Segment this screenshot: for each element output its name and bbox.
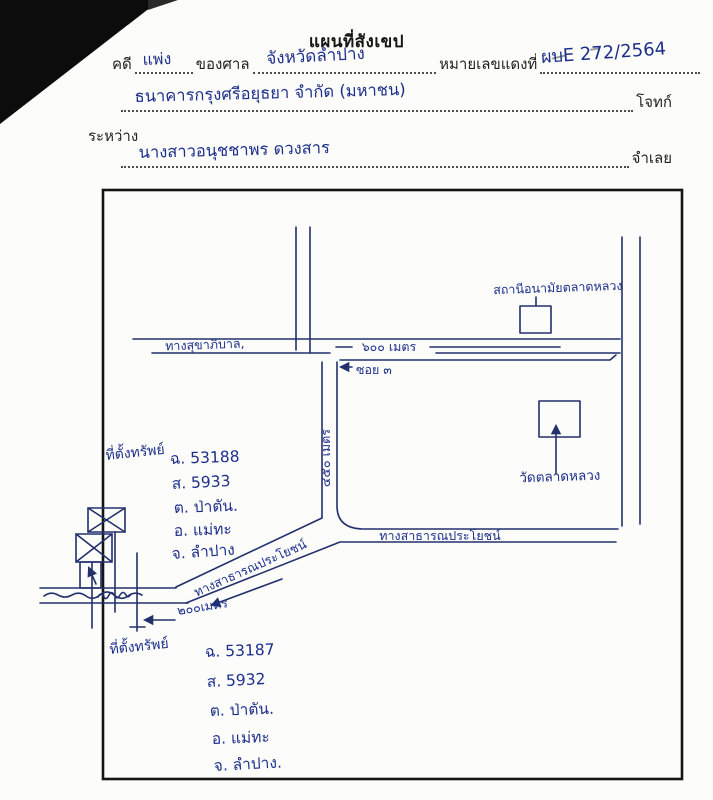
temple-box: [539, 401, 580, 437]
property1-title: ที่ตั้งทรัพย์: [104, 439, 165, 464]
property1-deed: ฉ. 53188: [170, 448, 240, 468]
health-station-box: [520, 306, 551, 333]
property2-deed: ฉ. 53187: [205, 641, 275, 661]
health-station-label: สถานีอนามัยตลาดหลวง: [493, 278, 623, 298]
property2-title: ที่ตั้งทรัพย์: [108, 633, 169, 658]
property1-survey: ส. 5933: [171, 472, 231, 493]
distance-200m-label: ๒๐๐เมตร: [176, 595, 229, 618]
property-block-2: ที่ตั้งทรัพย์ ฉ. 53187 ส. 5932 ต. ป่าตัน…: [108, 633, 282, 775]
property2-amphoe: อ. แม่ทะ: [212, 728, 271, 748]
temple-label: วัดตลาดหลวง: [519, 468, 601, 487]
property2-province: จ. ลำปาง.: [213, 753, 282, 775]
property1-amphoe: อ. แม่ทะ: [174, 520, 233, 540]
sketch-map: ทางสุขาภิบาล, ๖๐๐ เมตร ซอย ๓ ๔๕๐ เมตร สถ…: [0, 0, 713, 800]
public-road-right-label: ทางสาธารณประโยชน์: [379, 528, 501, 543]
property-block-1: ที่ตั้งทรัพย์ ฉ. 53188 ส. 5933 ต. ป่าตัน…: [104, 439, 239, 563]
building-box-3: [80, 562, 101, 588]
measure-600m-line: [340, 355, 616, 360]
building-x-mark: [76, 534, 112, 562]
scanned-court-sketch-map-page: แผนที่สังเขป คดี แพ่ง ของศาล จังหวัดลำปา…: [0, 0, 713, 800]
distance-600m-label: ๖๐๐ เมตร: [362, 339, 417, 354]
property2-tambon: ต. ป่าตัน.: [210, 700, 275, 720]
road-top-label: ทางสุขาภิบาล,: [165, 336, 245, 355]
distance-450m-label: ๔๕๐ เมตร: [318, 429, 333, 487]
property1-province: จ. ลำปาง: [171, 541, 235, 563]
property1-tambon: ต. ป่าตัน.: [174, 497, 239, 517]
building-x-mark: [88, 508, 125, 532]
road-soi-to-public-road: [337, 362, 618, 529]
property2-survey: ส. 5932: [206, 670, 266, 691]
soi-3-label: ซอย ๓: [356, 362, 392, 377]
